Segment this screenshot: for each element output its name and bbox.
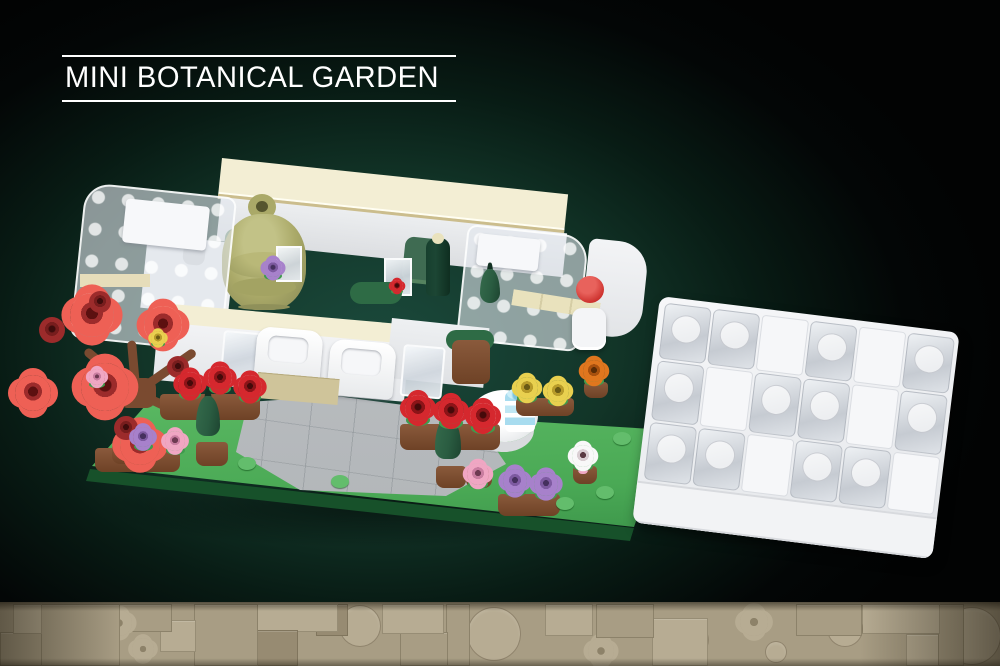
flower-rose: [391, 280, 403, 292]
lid-brick-stud: [801, 451, 834, 483]
flower-rose: [178, 372, 202, 396]
title-block: MINI BOTANICAL GARDEN: [62, 55, 456, 102]
footer-round-tile: [766, 642, 786, 662]
lid-brick-stud: [905, 401, 938, 434]
lid-white-brick: [741, 434, 795, 497]
footer-flower-tile: [132, 638, 154, 660]
footer-tile: [40, 604, 120, 666]
lid-trans-brick: [894, 390, 948, 455]
flower-rose: [405, 395, 431, 421]
flower-pink: [467, 463, 489, 485]
flower-rose: [208, 366, 232, 390]
footer-tile: [862, 604, 940, 634]
lid-trans-brick: [644, 422, 698, 485]
lid-trans-brick: [692, 428, 746, 491]
footer-tile: [446, 604, 470, 666]
footer-round-tile: [468, 608, 520, 660]
footer-tile: [194, 604, 258, 666]
lid-trans-brick: [797, 378, 851, 443]
flower-purple: [503, 469, 527, 493]
lid-brick-stud: [816, 331, 849, 362]
footer-tile: [0, 632, 42, 666]
flower-purple: [264, 259, 282, 277]
footer-flower-tile: [588, 638, 614, 664]
flower-yellow: [151, 331, 165, 345]
lid-trans-brick: [902, 333, 955, 394]
footer-tile: [382, 604, 444, 634]
pine-cone-plant: [480, 269, 500, 303]
flower-yellow: [516, 377, 538, 399]
lid-brick-stud: [718, 319, 751, 350]
flower-rose: [238, 375, 262, 399]
lid-brick-stud: [913, 343, 946, 374]
flower-purple: [133, 427, 153, 447]
footer-tile: [13, 604, 42, 634]
flower-barrel: [39, 317, 65, 343]
page-title: MINI BOTANICAL GARDEN: [65, 63, 439, 93]
footer-tile: [545, 604, 593, 636]
flower-coral: [15, 375, 51, 411]
lid-trans-brick: [748, 372, 802, 437]
flower-barrel: [89, 291, 111, 313]
flower-pink: [89, 369, 105, 385]
baseplate-stud: [556, 497, 574, 510]
flower-purple: [534, 472, 558, 496]
lid-brick-stud: [849, 457, 882, 489]
brown-flower-pot: [196, 442, 228, 466]
flower-white: [572, 445, 594, 467]
footer-tile: [256, 604, 338, 632]
lid-brick-stud: [662, 372, 695, 405]
footer-tile: [256, 630, 298, 666]
lid-white-brick: [845, 384, 899, 449]
flower-rose: [470, 403, 496, 429]
lid-trans-brick: [789, 440, 843, 503]
footer-tile: [596, 604, 654, 638]
baseplate-stud: [238, 457, 256, 470]
lid-white-brick: [887, 452, 941, 515]
baseplate-stud: [331, 475, 349, 488]
flower-pink: [165, 431, 185, 451]
lid-build: [632, 296, 960, 559]
lid-trans-brick: [651, 360, 705, 425]
flower-yellow: [547, 380, 569, 402]
footer-tile: [906, 634, 940, 666]
lid-trans-brick: [804, 321, 857, 382]
footer-tile: [400, 632, 448, 666]
footer-flower-tile: [740, 608, 768, 636]
lid-brick-stud: [808, 389, 841, 422]
lid-white-brick: [756, 315, 809, 376]
lid-white-brick: [699, 366, 753, 431]
flower-rose: [438, 398, 464, 424]
footer-tile: [938, 604, 964, 666]
lid-brick-stud: [704, 439, 737, 471]
lid-brick-stud: [655, 433, 688, 465]
lid-brick-stud: [760, 383, 793, 416]
baseplate-stud: [613, 432, 631, 445]
flower-coral: [81, 363, 129, 411]
flower-orange: [583, 360, 605, 382]
lid-trans-brick: [707, 309, 760, 370]
lid-brick-stud: [670, 313, 703, 344]
footer-tile-strip: [0, 602, 1000, 666]
footer-tile: [652, 618, 708, 666]
brown-flower-pot: [436, 466, 466, 488]
scene: MINI BOTANICAL GARDEN: [0, 0, 1000, 666]
lid-trans-brick: [658, 303, 711, 364]
lid-trans-brick: [838, 446, 892, 509]
footer-tile: [796, 604, 862, 636]
baseplate-stud: [596, 486, 614, 499]
lid-white-brick: [853, 327, 906, 388]
